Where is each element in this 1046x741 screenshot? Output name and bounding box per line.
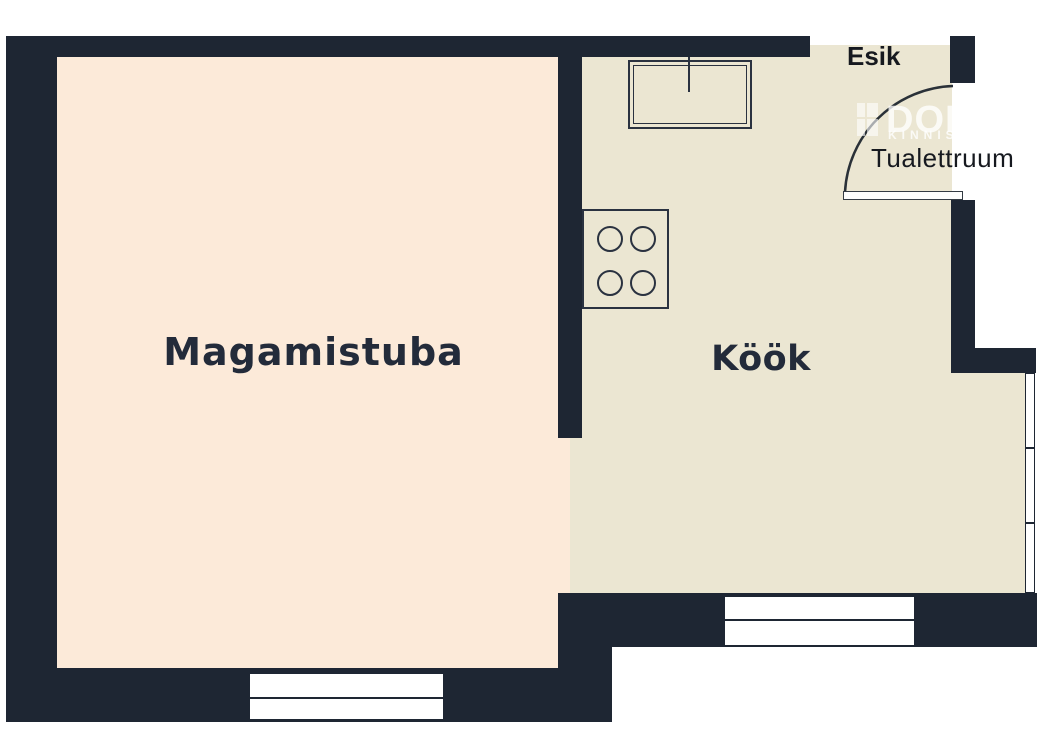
watermark-logo-pane bbox=[857, 119, 865, 136]
bedroom-window bbox=[248, 672, 445, 721]
bedroom-window-divider bbox=[250, 697, 443, 699]
burner-icon bbox=[630, 270, 656, 296]
burner-icon bbox=[597, 226, 623, 252]
burner-icon bbox=[597, 270, 623, 296]
watermark-logo-pane bbox=[857, 103, 865, 117]
kitchen-window bbox=[723, 595, 916, 647]
wall-step-connector bbox=[558, 593, 612, 722]
floor-plan: DOM KINNIS Magamistuba Köök Esik Tualett… bbox=[0, 0, 1046, 741]
kitchen-label: Köök bbox=[570, 339, 952, 379]
right-window-divider-1 bbox=[1026, 447, 1034, 449]
watermark-logo-pane bbox=[867, 103, 878, 117]
wall-entry-right-upper bbox=[950, 36, 975, 83]
kitchen-floor-right-extension bbox=[950, 373, 1026, 593]
burner-icon bbox=[630, 226, 656, 252]
wall-left bbox=[6, 36, 57, 722]
sink-icon bbox=[628, 60, 752, 129]
wall-top bbox=[6, 36, 810, 57]
door-leaf-icon bbox=[843, 191, 963, 200]
watermark-logo-icon bbox=[857, 103, 880, 140]
watermark-logo-pane bbox=[867, 119, 878, 136]
right-window bbox=[1025, 373, 1035, 593]
bedroom-label: Magamistuba bbox=[57, 330, 570, 374]
entry-label: Esik bbox=[847, 41, 901, 72]
right-window-divider-2 bbox=[1026, 522, 1034, 524]
sink-basin bbox=[633, 65, 747, 124]
faucet-icon bbox=[688, 57, 690, 92]
stove-icon bbox=[582, 209, 669, 309]
wall-stub-right bbox=[951, 348, 1036, 373]
toilet-label: Tualettruum bbox=[871, 143, 1014, 174]
wall-entry-right-lower bbox=[951, 200, 975, 366]
kitchen-window-divider bbox=[725, 619, 914, 621]
watermark-sub-text: KINNIS bbox=[888, 128, 958, 142]
wall-divider-bedroom-kitchen bbox=[558, 57, 582, 438]
